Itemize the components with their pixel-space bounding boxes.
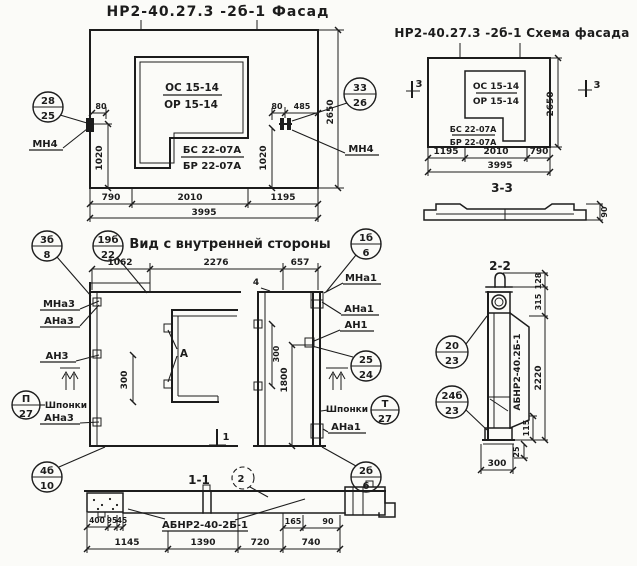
inner-dim-3: 657 [291,258,310,268]
callout-25-24: 25 24 [312,346,381,381]
inner-dim-left-300: 300 [120,371,130,390]
part-label-2-2: АБНР2-40.2Б-1 [513,333,523,410]
schema-opening-bottom: ОР 15-14 [473,97,519,107]
facade-view: НР2-40.27.3 -2б-1 Фасад ОС 15-14 ОР 15-1… [29,4,379,222]
dim-bottom-1: 790 [102,193,121,203]
callout-20-23: 20 23 [436,316,487,368]
dim-2220: 2220 [534,365,544,390]
callout-2b-6-top: 2б [359,465,373,477]
label-an3: АН3 [45,351,68,362]
label-an1: АН1 [344,320,367,331]
callout-2b-6: 2б 6 [322,447,381,492]
dim-1390: 1390 [190,538,215,548]
dim-right-edge: 485 [294,102,311,111]
callout-4b-10: 4б 10 [32,447,105,492]
section-1-1: 1-1 2 АБНР2-40-2Б-1 400 95 45 165 90 [85,467,395,553]
schema-view: НР2-40.27.3 -2б-1 Схема фасада ОС 15-14 … [394,26,629,220]
callout-25-24-top: 25 [359,355,373,366]
callout-t-27: Т 27 [371,396,399,425]
section-2-2-title: 2-2 [489,259,511,273]
blueprint-page: НР2-40.27.3 -2б-1 Фасад ОС 15-14 ОР 15-1… [0,0,637,566]
inner-dim-height: 1800 [280,367,290,392]
label-ana1-bottom: АНа1 [331,422,361,433]
dim-400: 400 [89,516,105,525]
label-ana1-top: АНа1 [344,304,374,315]
profile-3-3-title: 3-3 [491,181,513,195]
callout-3b-8-top: 3б [40,234,54,246]
node-mark-top: 4 [253,278,259,288]
callout-p-27-bottom: 27 [19,409,33,420]
anchor-mark-left [86,118,94,132]
panel-void-circle [492,295,506,309]
callout-24b-23-bottom: 23 [445,406,459,417]
part-label-1-1: АБНР2-40-2Б-1 [162,520,248,531]
callout-4b-10-top: 4б [40,465,54,477]
keys-arrows-left [60,368,80,390]
callout-24b-23: 24б 23 [436,386,487,430]
schema-sill-top: БС 22-07А [450,125,497,134]
inner-dim-2: 2276 [203,258,228,268]
callout-1b-6-top: 1б [359,232,373,244]
callout-33-26-bottom: 26 [353,98,367,109]
callout-p-27-top: П [22,394,30,405]
dim-bottom-3: 1195 [270,193,295,203]
dim-right-offset: 80 [271,102,283,111]
anchor-label-right: МН4 [348,144,373,155]
opening-mark-bottom: ОР 15-14 [164,99,218,111]
left-end-block [87,493,123,512]
detail-letter: А [180,348,189,360]
dim-facade-height: 2650 [326,99,336,124]
dim-right-height: 1020 [259,145,269,170]
dim-90: 90 [322,517,334,526]
inner-view-title: Вид с внутренней стороны [129,237,330,252]
opening-mark-top: ОС 15-14 [165,82,219,94]
callout-3b-8-bottom: 8 [44,250,51,261]
facade-title: НР2-40.27.3 -2б-1 Фасад [107,4,330,20]
dim-bottom-total: 3995 [191,208,216,218]
dim-left-height: 1020 [95,145,105,170]
inner-panel-left: А 300 1 [90,283,240,446]
callout-t-27-bottom: 27 [378,414,392,425]
inner-view: Вид с внутренней стороны 3б 8 19б 22 1б … [12,229,399,492]
drawing-canvas: НР2-40.27.3 -2б-1 Фасад ОС 15-14 ОР 15-1… [0,0,637,566]
callout-28-25-bottom: 25 [41,111,55,122]
detail-2-mark: 2 [238,474,245,485]
inner-dim-right-300: 300 [272,345,281,362]
dim-740: 740 [302,538,321,548]
schema-opening-top: ОС 15-14 [473,82,519,92]
anchor-label-left: МН4 [32,139,57,150]
dim-115: 115 [522,419,531,436]
inner-panel-right: 300 1800 [254,292,325,446]
callout-20-23-bottom: 23 [445,356,459,367]
callout-33-26-top: 33 [353,83,367,94]
schema-dim-total: 3995 [487,161,512,171]
label-keys-right: Шпонки [326,405,368,415]
label-keys-left: Шпонки [45,401,87,411]
callout-24b-23-top: 24б [442,390,463,402]
dim-1145: 1145 [114,538,139,548]
profile-3-3-dim: 90 [600,206,609,218]
callout-20-23-top: 20 [445,341,459,352]
label-ana3-bottom: АНа3 [44,413,74,424]
dim-165: 165 [285,517,302,526]
label-ana3-top: АНа3 [44,316,74,327]
dim-left-offset: 80 [95,102,107,111]
sill-mark-bottom: БР 22-07А [183,161,241,172]
dim-128: 128 [534,272,543,289]
section-mark-left: 3 [416,79,423,90]
schema-title: НР2-40.27.3 -2б-1 Схема фасада [394,26,629,40]
section-2-2: 2-2 АБНР2-40.2Б-1 20 23 24б 23 128 315 [436,259,548,474]
callout-28-25-top: 28 [41,96,55,107]
inner-dim-1: 1062 [107,258,132,268]
callout-t-27-top: Т [382,399,389,410]
label-mna3: МНа3 [43,299,75,310]
callout-p-27: П 27 [12,391,45,420]
callout-3b-8: 3б 8 [32,231,91,296]
dim-300: 300 [488,459,507,469]
sill-mark-top: БС 22-07А [183,145,241,156]
callout-1b-6-bottom: 6 [363,248,370,259]
dim-45: 45 [117,516,127,525]
schema-dim-height: 2650 [546,91,556,116]
dim-95: 95 [107,516,117,525]
schema-sill-bottom: БР 22-07А [450,138,497,147]
dim-bottom-2: 2010 [177,193,202,203]
schema-dim-3: 790 [530,147,549,157]
callout-19b-22-top: 19б [98,234,119,246]
dim-720: 720 [251,538,270,548]
section-mark-right: 3 [594,80,601,91]
callout-25-24-bottom: 24 [359,370,373,381]
lifting-loop [495,273,505,287]
schema-dim-2: 2010 [483,147,508,157]
schema-dim-1: 1195 [433,147,458,157]
label-mna1: МНа1 [345,273,377,284]
section-mark-1: 1 [223,432,230,443]
callout-28-25: 28 25 [33,92,87,123]
keys-arrows-right [326,368,348,390]
dim-315: 315 [534,293,543,310]
callout-4b-10-bottom: 10 [40,481,54,492]
